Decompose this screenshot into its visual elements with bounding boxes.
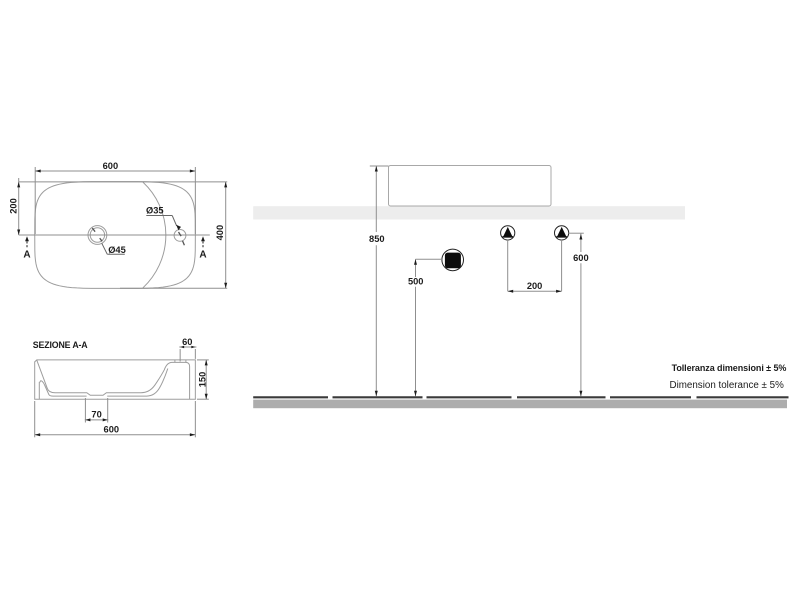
svg-text:SEZIONE A-A: SEZIONE A-A (33, 340, 89, 350)
svg-text:400: 400 (215, 225, 225, 241)
svg-text:150: 150 (198, 372, 208, 388)
svg-text:70: 70 (91, 410, 101, 420)
svg-text:500: 500 (408, 277, 424, 287)
svg-text:Dimension tolerance ± 5%: Dimension tolerance ± 5% (670, 380, 785, 391)
svg-text:600: 600 (104, 425, 120, 435)
svg-text:A: A (23, 250, 30, 261)
svg-text:200: 200 (8, 198, 18, 214)
svg-text:A: A (199, 250, 206, 261)
svg-text:Tolleranza dimensioni ± 5%: Tolleranza dimensioni ± 5% (672, 363, 787, 373)
svg-text:60: 60 (182, 337, 192, 347)
svg-text:600: 600 (103, 161, 119, 171)
svg-text:Ø35: Ø35 (146, 205, 164, 215)
svg-text:Ø45: Ø45 (108, 245, 126, 255)
svg-text:600: 600 (573, 253, 589, 263)
svg-text:200: 200 (527, 281, 543, 291)
svg-text:850: 850 (369, 234, 385, 244)
